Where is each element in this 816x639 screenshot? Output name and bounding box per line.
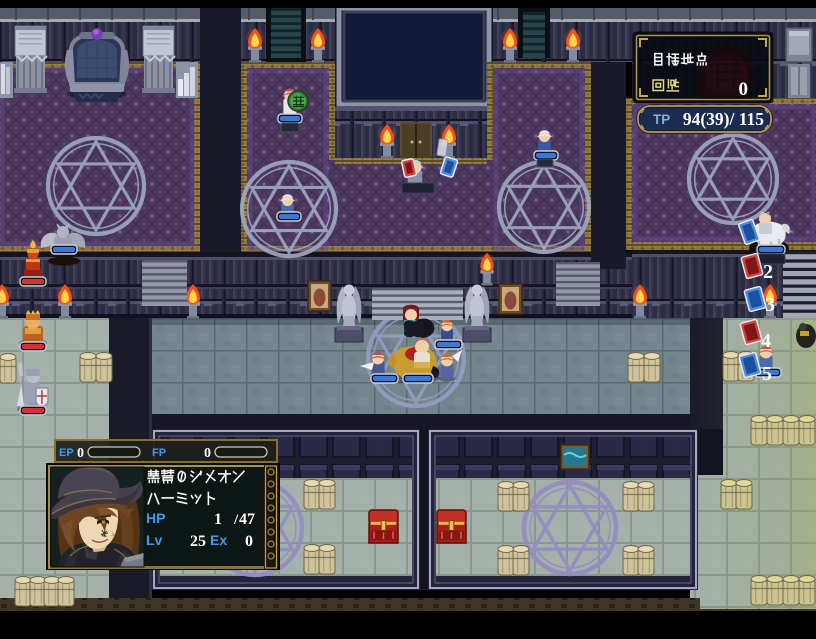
svg-text:4: 4 xyxy=(761,330,771,352)
svg-text:2: 2 xyxy=(763,261,773,283)
svg-text:HP: HP xyxy=(146,510,165,526)
svg-text:0: 0 xyxy=(739,79,749,100)
svg-text:47: 47 xyxy=(239,511,255,528)
svg-text:94(39)/ 115: 94(39)/ 115 xyxy=(683,109,764,129)
svg-text:1: 1 xyxy=(214,511,222,528)
svg-text:Lv: Lv xyxy=(146,532,163,548)
svg-text:Ex: Ex xyxy=(210,532,227,548)
svg-text:0: 0 xyxy=(77,446,84,461)
svg-text:25: 25 xyxy=(190,533,206,550)
svg-text:FP: FP xyxy=(152,447,166,459)
svg-text:TP: TP xyxy=(653,112,670,127)
svg-text:0: 0 xyxy=(204,446,211,461)
svg-text:EP: EP xyxy=(59,447,74,459)
svg-text:0: 0 xyxy=(245,533,253,550)
svg-text:3: 3 xyxy=(765,294,775,316)
svg-text:5: 5 xyxy=(762,363,772,385)
